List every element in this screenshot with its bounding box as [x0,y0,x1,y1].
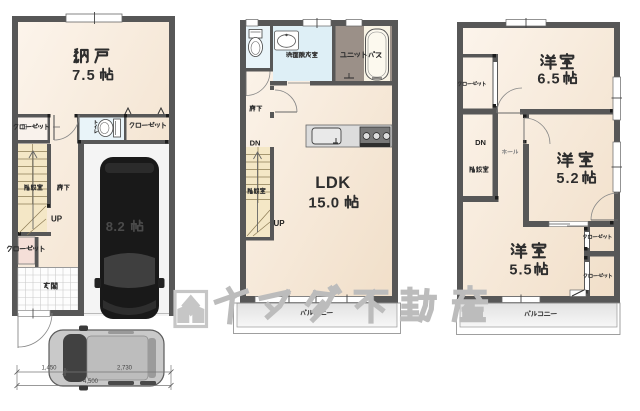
svg-text:1,450: 1,450 [41,366,57,372]
svg-text:LDK: LDK [315,174,350,192]
svg-text:5.5: 5.5 [509,263,532,279]
svg-text:15.0: 15.0 [308,195,339,212]
svg-text:7.5: 7.5 [72,68,96,84]
svg-text:DN: DN [250,139,261,148]
svg-text:UP: UP [51,215,63,224]
svg-text:UP: UP [273,219,285,228]
svg-text:6.5: 6.5 [537,72,560,88]
svg-text:DN: DN [475,138,486,147]
svg-text:5.2: 5.2 [556,171,579,187]
svg-text:2,730: 2,730 [117,366,133,372]
svg-text:4,500: 4,500 [83,379,99,385]
svg-text:8.2: 8.2 [106,219,126,234]
